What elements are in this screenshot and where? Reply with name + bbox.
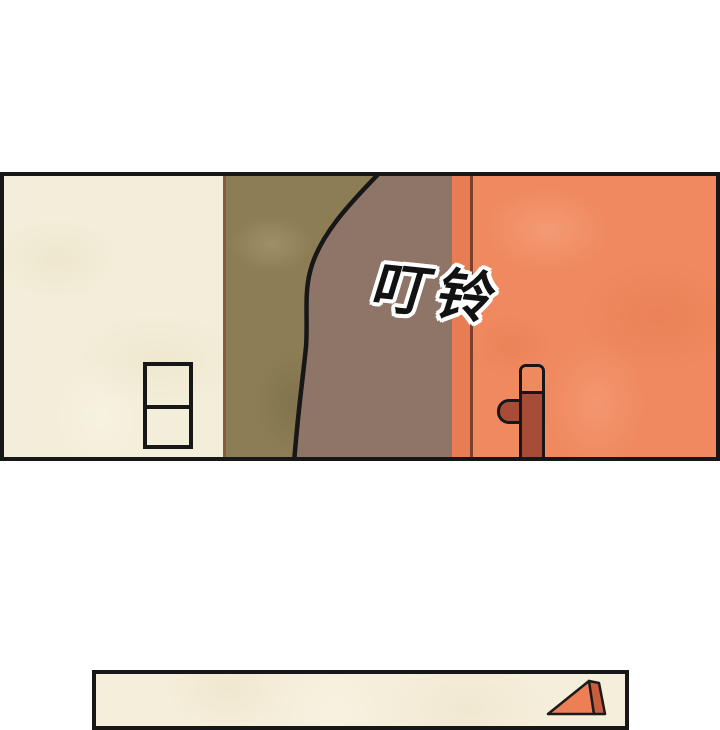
door-handle-bar xyxy=(519,364,545,461)
orange-box-front-face xyxy=(548,681,594,714)
light-switch-plate xyxy=(143,362,193,449)
comic-panel-bottom xyxy=(92,670,629,730)
comic-panel-top: 叮铃 xyxy=(0,172,720,461)
doorbell-sfx-text: 叮铃 xyxy=(366,261,510,329)
light-switch-divider xyxy=(147,405,189,409)
orange-box-corner xyxy=(96,674,625,726)
door-handle-bar-top xyxy=(522,367,542,394)
